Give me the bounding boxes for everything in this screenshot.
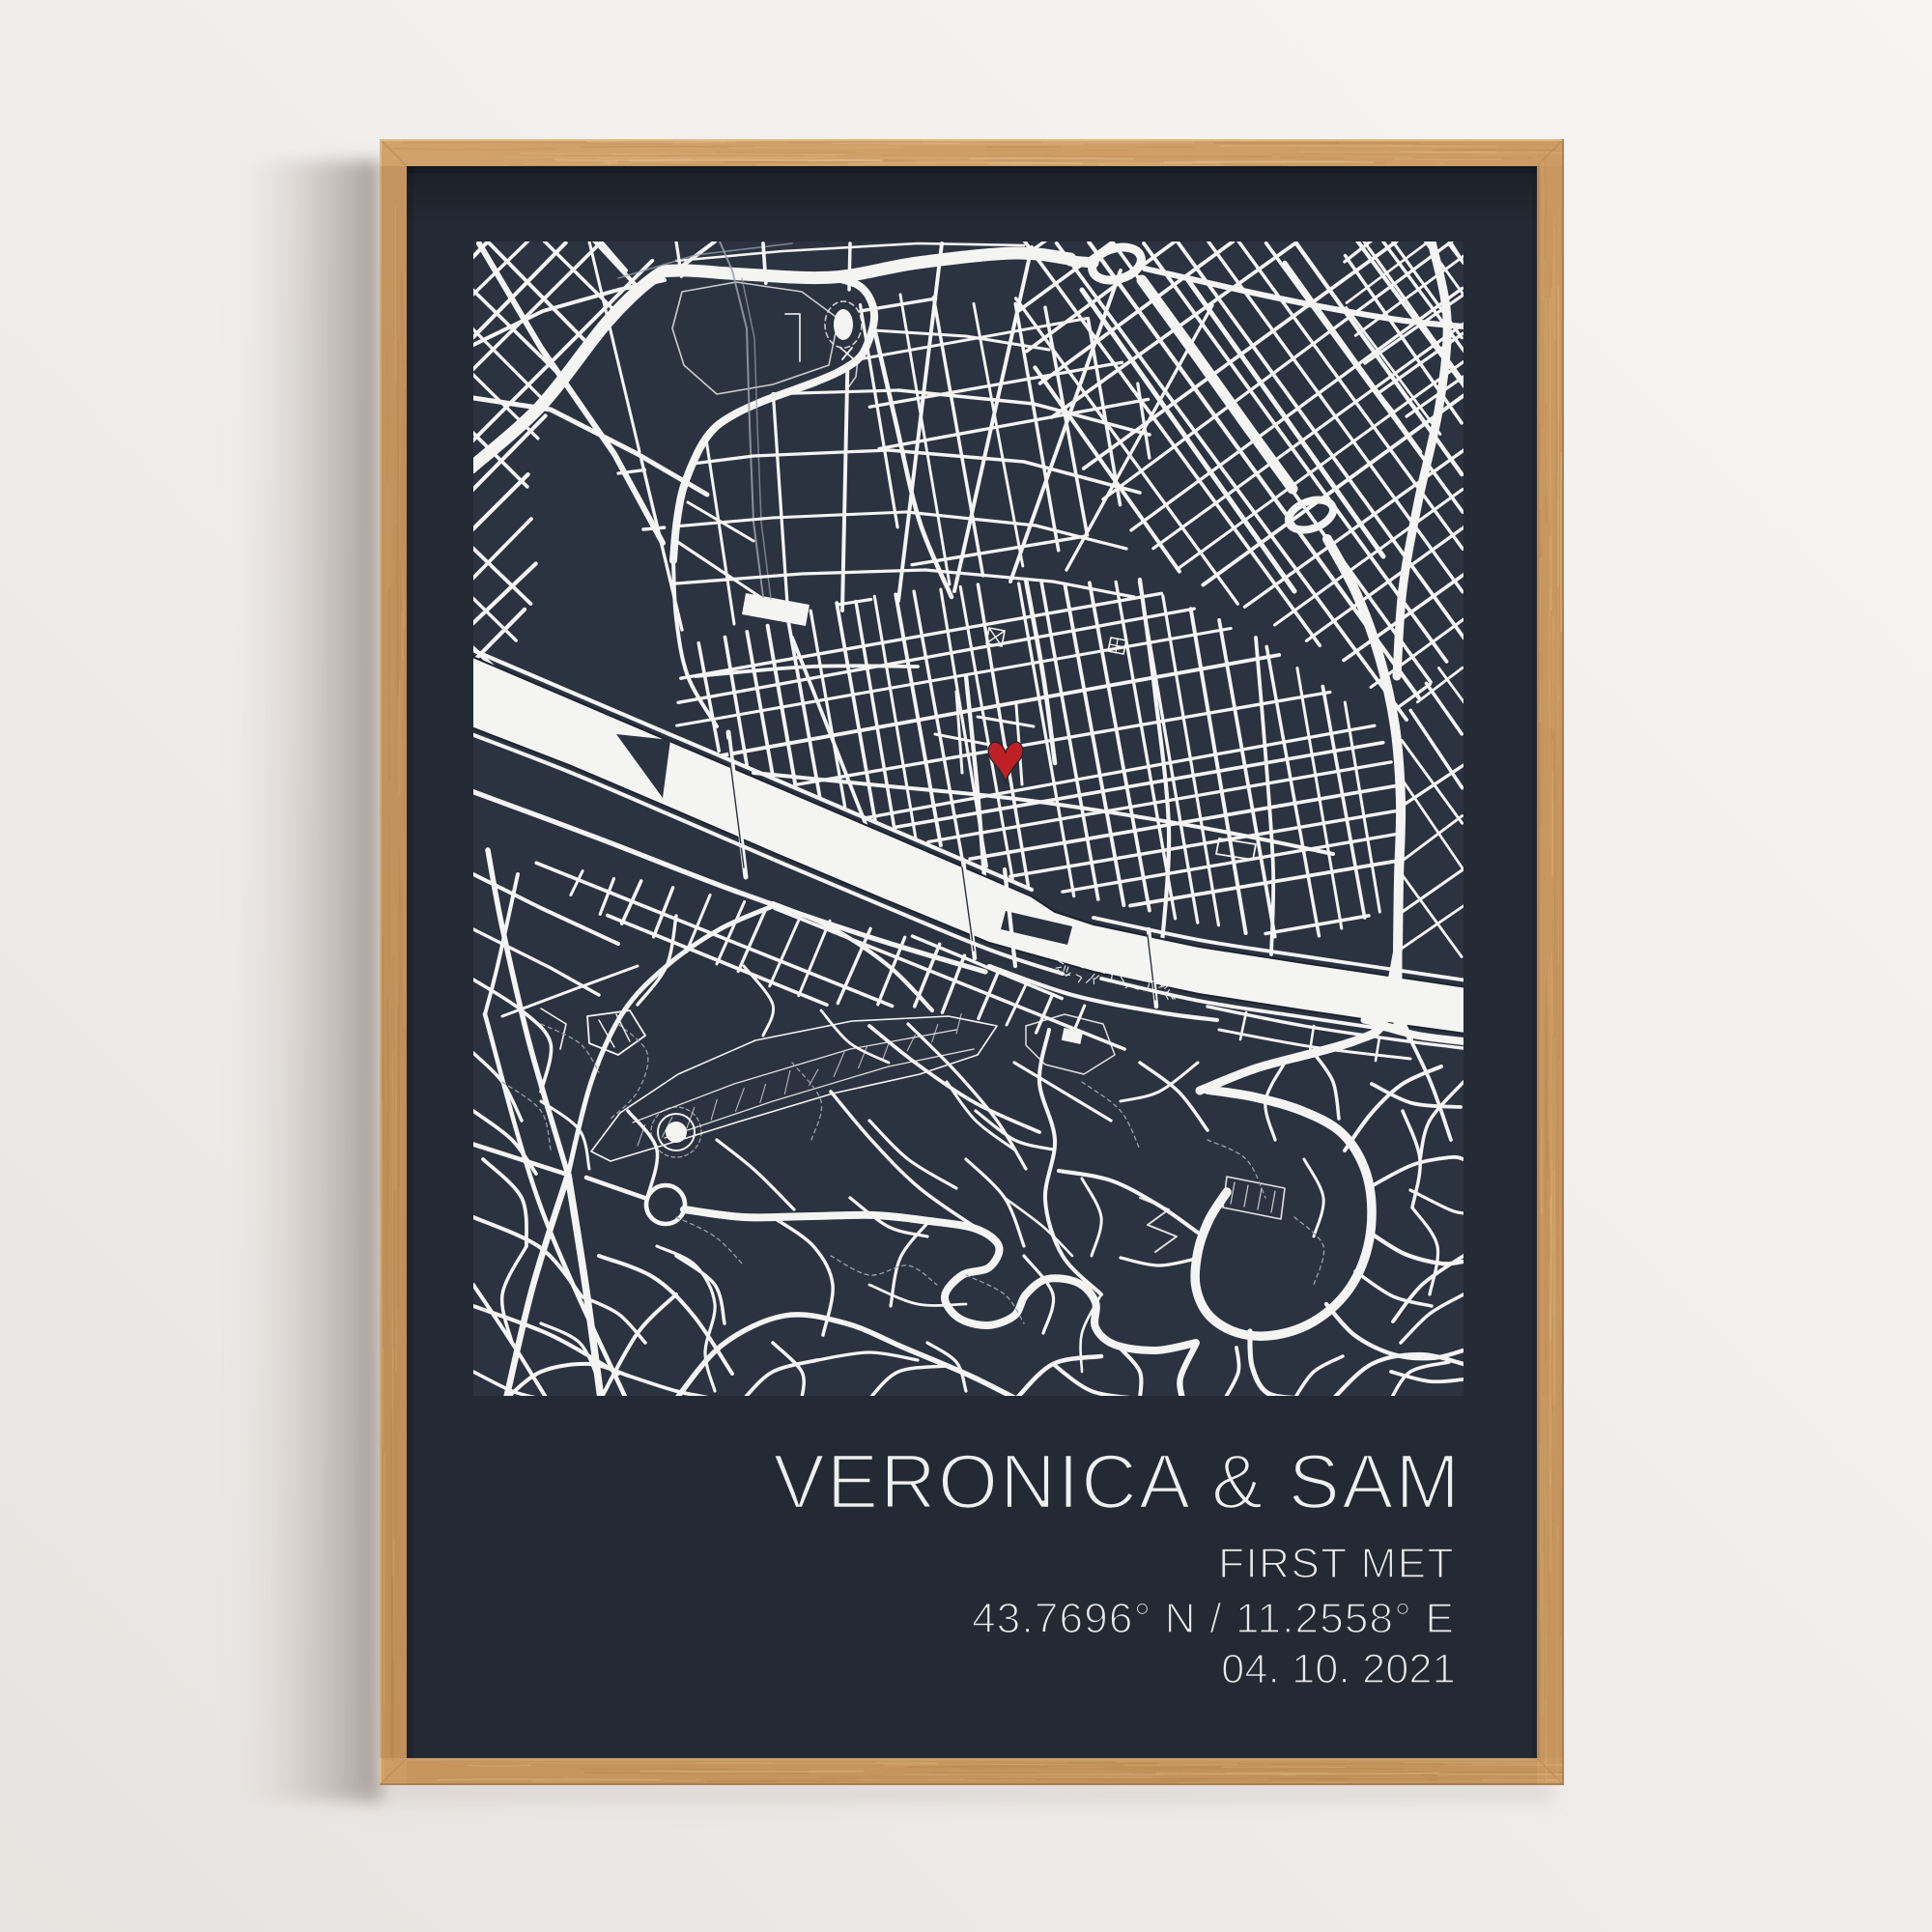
svg-text:VERONICA & SAM: VERONICA & SAM [773,1438,1462,1524]
svg-text:04. 10. 2021: 04. 10. 2021 [1221,1646,1456,1692]
svg-text:FIRST MET: FIRST MET [1218,1540,1455,1587]
svg-text:43.7696° N / 11.2558° E: 43.7696° N / 11.2558° E [972,1595,1455,1642]
